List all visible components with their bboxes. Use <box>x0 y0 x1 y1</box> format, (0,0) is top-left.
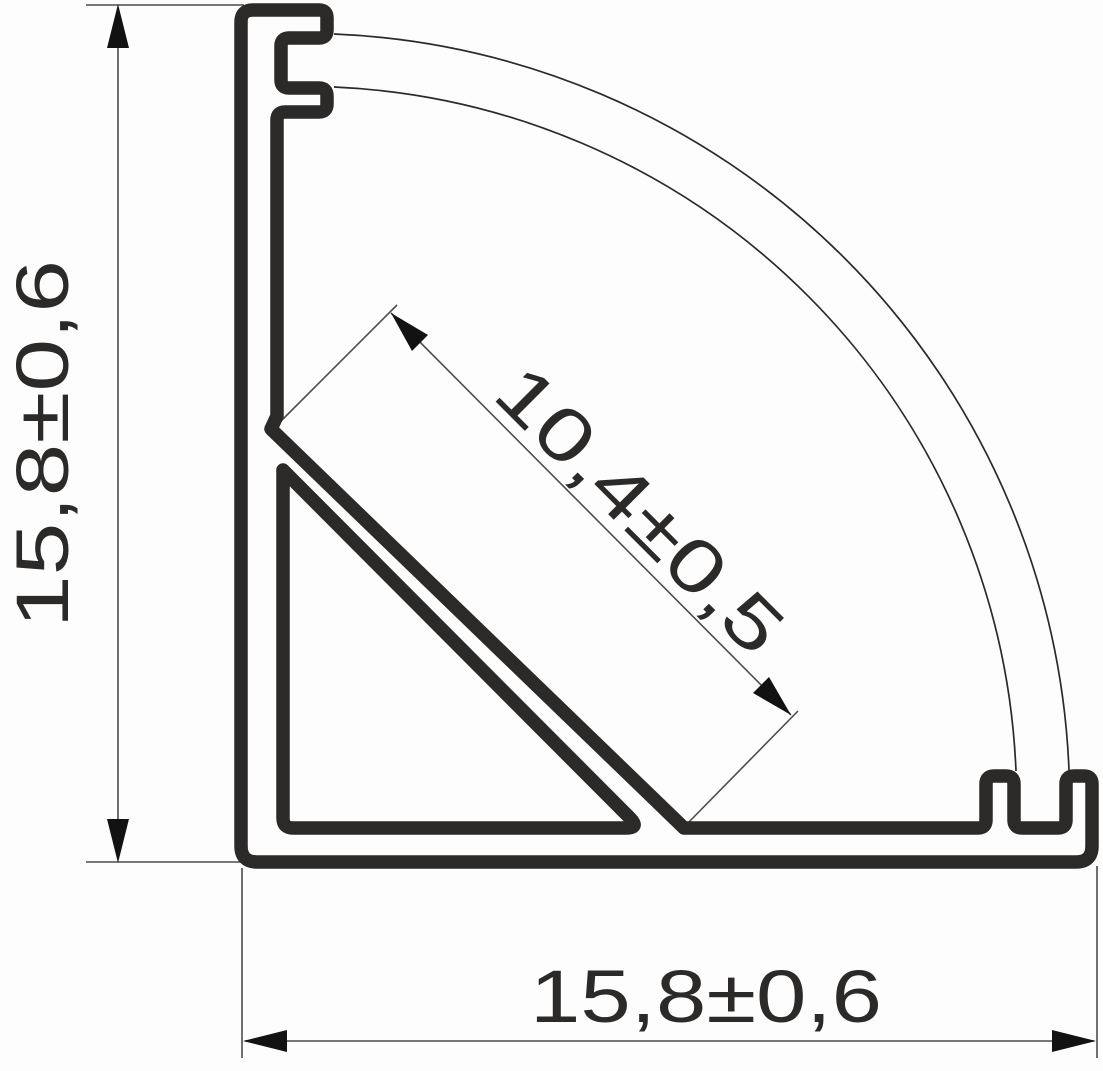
dimension-height: 15,8±0,6 <box>1 4 244 863</box>
dimension-width-label: 15,8±0,6 <box>530 955 882 1038</box>
dimension-diagonal: 10,4±0,5 <box>279 305 801 826</box>
cover-arc-inner <box>334 87 1016 771</box>
arrowhead-down-icon <box>107 819 129 863</box>
arrowhead-up-icon <box>107 4 129 48</box>
arrowhead-left-icon <box>243 1030 287 1052</box>
led-channel-triangle <box>283 470 634 828</box>
technical-drawing-canvas: 15,8±0,6 15,8±0,6 10,4±0,5 <box>0 0 1103 1071</box>
cover-arc-outer <box>334 34 1069 770</box>
arrowhead-right-icon <box>1052 1030 1096 1052</box>
drawing-page: 15,8±0,6 15,8±0,6 10,4±0,5 <box>0 0 1103 1071</box>
dimension-diagonal-label: 10,4±0,5 <box>479 349 801 671</box>
extension-line-diagonal-top <box>279 305 397 423</box>
extension-line-diagonal-bottom <box>685 711 798 826</box>
dimension-height-label: 15,8±0,6 <box>1 260 84 628</box>
dimension-width: 15,8±0,6 <box>242 866 1097 1058</box>
profile-outline <box>241 10 1092 862</box>
